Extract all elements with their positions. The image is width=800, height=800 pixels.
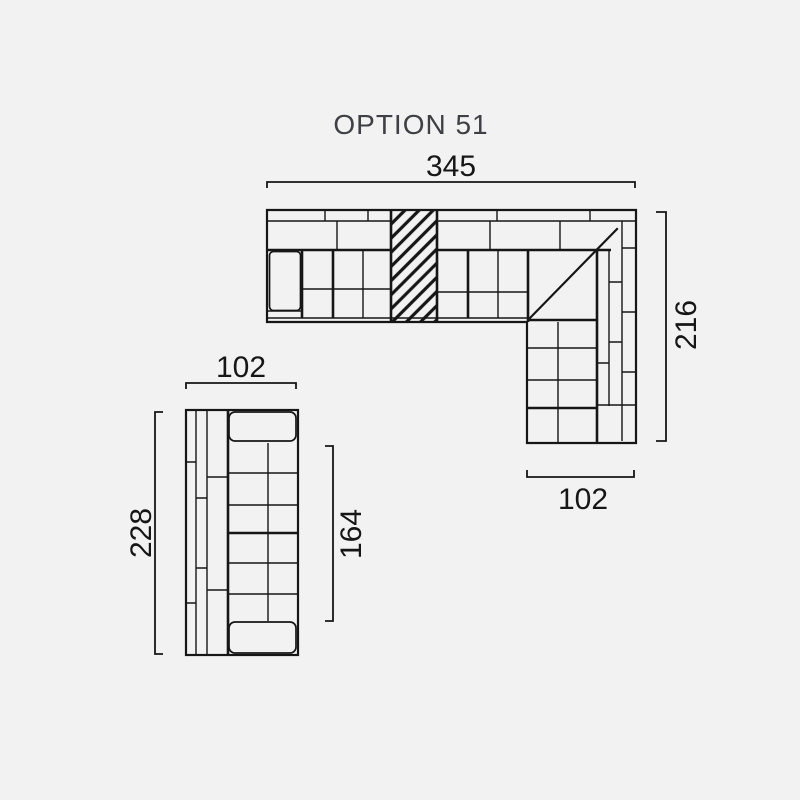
sectional-sofa-plan	[267, 210, 636, 443]
furniture-plan-canvas: OPTION 51	[0, 0, 800, 800]
plan-title: OPTION 51	[333, 109, 488, 140]
sofa-bottom-armrest	[229, 622, 296, 653]
dim-label-sofa-length: 228	[125, 508, 158, 558]
hatched-unit	[391, 210, 437, 322]
sofa-module-lines	[228, 410, 298, 655]
sectional-left-armrest	[270, 252, 301, 311]
dim-label-sofa-width: 102	[216, 351, 266, 384]
dim-label-sectional-return: 102	[558, 483, 608, 516]
dim-label-sectional-width: 345	[426, 150, 476, 183]
sofa-top-armrest	[229, 412, 296, 441]
dim-line-sectional-return	[527, 470, 634, 477]
dim-line-sectional-depth	[656, 212, 666, 441]
dim-label-sectional-depth: 216	[670, 300, 703, 350]
dim-line-sofa-seat	[325, 446, 333, 621]
two-seat-sofa-plan	[186, 410, 298, 655]
sofa-plan-drawing: OPTION 51	[0, 0, 800, 800]
dim-label-sofa-seat: 164	[335, 509, 368, 559]
corner-unit-diagonal	[530, 229, 617, 318]
